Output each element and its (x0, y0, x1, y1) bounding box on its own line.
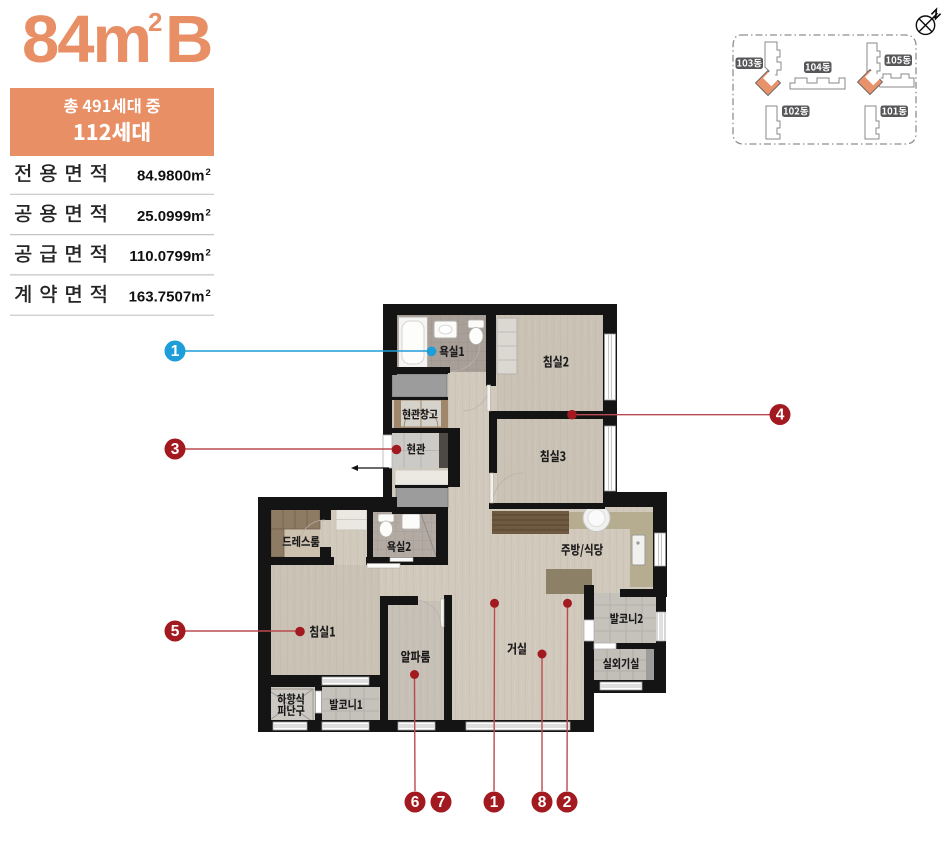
svg-text:2: 2 (563, 794, 572, 811)
svg-text:1: 1 (490, 794, 499, 811)
svg-text:110.0799m: 110.0799m (129, 248, 204, 265)
svg-text:4: 4 (776, 407, 785, 424)
svg-text:B: B (165, 2, 213, 77)
svg-text:2: 2 (206, 288, 211, 299)
svg-text:84m: 84m (22, 2, 150, 77)
svg-text:6: 6 (411, 794, 420, 811)
svg-text:84.9800m: 84.9800m (137, 168, 205, 185)
svg-text:7: 7 (437, 794, 446, 811)
svg-text:3: 3 (171, 441, 180, 458)
svg-text:8: 8 (538, 794, 547, 811)
svg-text:5: 5 (171, 623, 180, 640)
svg-text:163.7507m: 163.7507m (129, 288, 205, 305)
svg-text:1: 1 (171, 343, 180, 360)
svg-text:2: 2 (148, 7, 162, 37)
svg-text:2: 2 (206, 248, 211, 259)
svg-text:2: 2 (206, 167, 211, 178)
svg-text:25.0999m: 25.0999m (137, 208, 205, 225)
svg-text:2: 2 (206, 207, 211, 218)
